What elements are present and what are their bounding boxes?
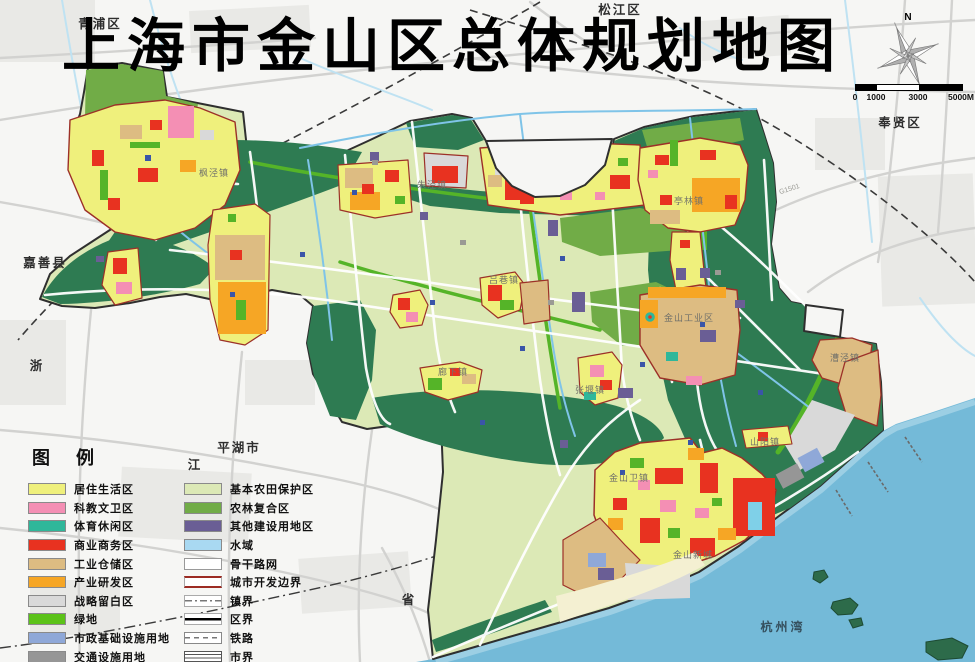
legend-item: 绿地 bbox=[28, 610, 170, 629]
legend-item-label: 城市开发边界 bbox=[230, 574, 302, 590]
legend-item-label: 居住生活区 bbox=[74, 481, 134, 497]
legend-item: 市政基础设施用地 bbox=[28, 629, 170, 648]
map-stage: 青浦区松江区奉贤区嘉善县平湖市浙江省枫泾镇朱泾镇亭林镇吕巷镇廊下镇张堰镇金山工业… bbox=[0, 0, 975, 662]
legend-item: 农林复合区 bbox=[184, 499, 314, 518]
legend-item: 战略留白区 bbox=[28, 592, 170, 611]
legend-swatch bbox=[28, 558, 66, 570]
legend-item: 科教文卫区 bbox=[28, 499, 170, 518]
map-title: 上海市金山区总体规划地图 bbox=[62, 18, 842, 76]
legend-swatch bbox=[28, 483, 66, 495]
map-label-water: 杭州湾 bbox=[760, 619, 805, 634]
legend-item-label: 科教文卫区 bbox=[74, 500, 134, 516]
legend-item-label: 市界 bbox=[230, 649, 254, 662]
legend-item-label: 骨干路网 bbox=[230, 556, 278, 572]
scale-tick: 1000 bbox=[867, 92, 886, 102]
scale-tick: 3000 bbox=[909, 92, 928, 102]
map-label-town: 金山卫镇 bbox=[609, 472, 649, 483]
legend-swatch bbox=[184, 502, 222, 514]
map-label-town: 枫泾镇 bbox=[199, 167, 229, 178]
legend-left-column: 居住生活区科教文卫区体育休闲区商业商务区工业仓储区产业研发区战略留白区绿地市政基… bbox=[28, 480, 170, 662]
legend-swatch bbox=[184, 539, 222, 551]
legend-swatch bbox=[28, 520, 66, 532]
map-label-town: 金山工业区 bbox=[664, 312, 714, 323]
scale-tick: 0 bbox=[853, 92, 858, 102]
legend-item: 水域 bbox=[184, 536, 314, 555]
legend-item: 市界 bbox=[184, 647, 314, 662]
legend-line-symbol bbox=[184, 558, 222, 570]
legend-item: 镇界 bbox=[184, 592, 314, 611]
legend-item-label: 绿地 bbox=[74, 611, 98, 627]
legend-title: 图例 bbox=[32, 444, 314, 470]
legend-swatch bbox=[28, 595, 66, 607]
map-label-town: 廊下镇 bbox=[438, 366, 468, 377]
scale-bar-graphic bbox=[855, 84, 963, 91]
legend-item: 其他建设用地区 bbox=[184, 517, 314, 536]
legend-item: 产业研发区 bbox=[28, 573, 170, 592]
legend-item: 工业仓储区 bbox=[28, 554, 170, 573]
legend-item-label: 战略留白区 bbox=[74, 593, 134, 609]
legend-item: 基本农田保护区 bbox=[184, 480, 314, 499]
compass-north-label: N bbox=[904, 12, 911, 23]
map-label-town: 朱泾镇 bbox=[417, 179, 447, 190]
legend-panel: 图例 居住生活区科教文卫区体育休闲区商业商务区工业仓储区产业研发区战略留白区绿地… bbox=[28, 444, 314, 662]
map-label-region: 省 bbox=[401, 592, 417, 607]
legend-item: 骨干路网 bbox=[184, 554, 314, 573]
map-label-town: 亭林镇 bbox=[674, 195, 704, 206]
legend-swatch bbox=[184, 483, 222, 495]
legend-line-symbol bbox=[184, 651, 222, 662]
legend-swatch bbox=[28, 651, 66, 662]
legend-item-label: 水域 bbox=[230, 537, 254, 553]
legend-right-column: 基本农田保护区农林复合区其他建设用地区水域骨干路网城市开发边界镇界区界铁路市界 bbox=[184, 480, 314, 662]
legend-line-symbol bbox=[184, 613, 222, 625]
legend-item-label: 体育休闲区 bbox=[74, 518, 134, 534]
map-label-town: 吕巷镇 bbox=[489, 274, 519, 285]
map-label-town: 漕泾镇 bbox=[830, 352, 860, 363]
legend-item-label: 商业商务区 bbox=[74, 537, 134, 553]
legend-line-symbol bbox=[184, 632, 222, 644]
legend-swatch bbox=[28, 632, 66, 644]
legend-item: 体育休闲区 bbox=[28, 517, 170, 536]
map-label-region: 嘉善县 bbox=[22, 255, 67, 270]
legend-item-label: 交通设施用地 bbox=[74, 649, 146, 662]
legend-item: 商业商务区 bbox=[28, 536, 170, 555]
legend-swatch bbox=[28, 576, 66, 588]
legend-item: 城市开发边界 bbox=[184, 573, 314, 592]
legend-item-label: 区界 bbox=[230, 611, 254, 627]
map-label-town: 张堰镇 bbox=[575, 384, 605, 395]
legend-item-label: 市政基础设施用地 bbox=[74, 630, 170, 646]
legend-item: 铁路 bbox=[184, 629, 314, 648]
legend-swatch bbox=[28, 613, 66, 625]
legend-item-label: 农林复合区 bbox=[230, 500, 290, 516]
scale-bar: 0100030005000M bbox=[855, 84, 965, 106]
map-label-town: 金山新城 bbox=[673, 549, 713, 560]
legend-line-symbol bbox=[184, 576, 222, 588]
legend-line-symbol bbox=[184, 595, 222, 607]
legend-item: 区界 bbox=[184, 610, 314, 629]
legend-item-label: 铁路 bbox=[230, 630, 254, 646]
legend-item-label: 镇界 bbox=[230, 593, 254, 609]
legend-item: 交通设施用地 bbox=[28, 647, 170, 662]
scale-tick: 5000M bbox=[948, 92, 974, 102]
map-label-region: 浙 bbox=[30, 358, 45, 373]
legend-item: 居住生活区 bbox=[28, 480, 170, 499]
legend-swatch bbox=[184, 520, 222, 532]
legend-swatch bbox=[28, 539, 66, 551]
legend-item-label: 工业仓储区 bbox=[74, 556, 134, 572]
map-label-region: 奉贤区 bbox=[877, 115, 922, 130]
legend-item-label: 基本农田保护区 bbox=[230, 481, 314, 497]
legend-item-label: 其他建设用地区 bbox=[230, 518, 314, 534]
map-label-town: 山阳镇 bbox=[750, 436, 780, 447]
legend-swatch bbox=[28, 502, 66, 514]
legend-item-label: 产业研发区 bbox=[74, 574, 134, 590]
